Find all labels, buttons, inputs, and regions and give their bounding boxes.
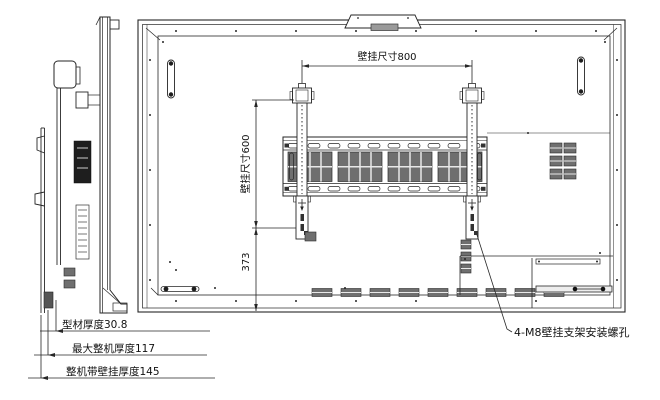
display-wall-mount-drawing: 型材厚度30.8 最大整机厚度117 整机带壁挂厚度145	[0, 0, 660, 400]
dim-bottom-offset: 373	[241, 228, 258, 311]
hook-lower	[35, 192, 45, 206]
camera-window	[371, 24, 398, 31]
mount-hole-note-label: 4-M8壁挂支架安装螺孔	[514, 325, 629, 339]
dim-wall-mount-width: 壁挂尺寸800	[302, 50, 472, 83]
side-labels	[64, 141, 91, 288]
dim-wall-mount-width-label: 壁挂尺寸800	[357, 50, 416, 63]
bracket-label	[44, 292, 53, 308]
vent-right-mid	[550, 143, 576, 179]
vent-bottom-row	[312, 289, 564, 297]
side-vent	[64, 280, 75, 288]
handle-right	[578, 57, 585, 95]
top-cap	[110, 20, 119, 29]
dim-profile-thickness-label: 型材厚度30.8	[62, 318, 127, 331]
side-vent	[64, 268, 75, 276]
technical-drawing-canvas: 型材厚度30.8 最大整机厚度117 整机带壁挂厚度145	[0, 0, 660, 400]
vent-right-bracket-column	[461, 240, 471, 273]
label-sticker-light	[76, 205, 89, 259]
mount-rail	[283, 137, 487, 196]
arrowhead	[41, 376, 48, 380]
side-view	[35, 17, 127, 313]
vent-left-bracket	[305, 232, 316, 241]
arrowhead	[48, 353, 55, 357]
handle-left	[168, 60, 175, 98]
label-sticker-dark	[74, 141, 91, 183]
wall-bracket-side	[35, 88, 61, 313]
dim-total-thickness-label: 整机带壁挂厚度145	[66, 365, 160, 378]
dim-wall-mount-height-label: 壁挂尺寸600	[239, 134, 252, 193]
camera-bump-rear	[345, 15, 421, 31]
dim-bottom-offset-label: 373	[241, 252, 252, 271]
bottom-right-recess	[460, 252, 613, 308]
side-panel-profile	[96, 17, 127, 313]
dim-max-thickness-label: 最大整机厚度117	[72, 342, 155, 355]
